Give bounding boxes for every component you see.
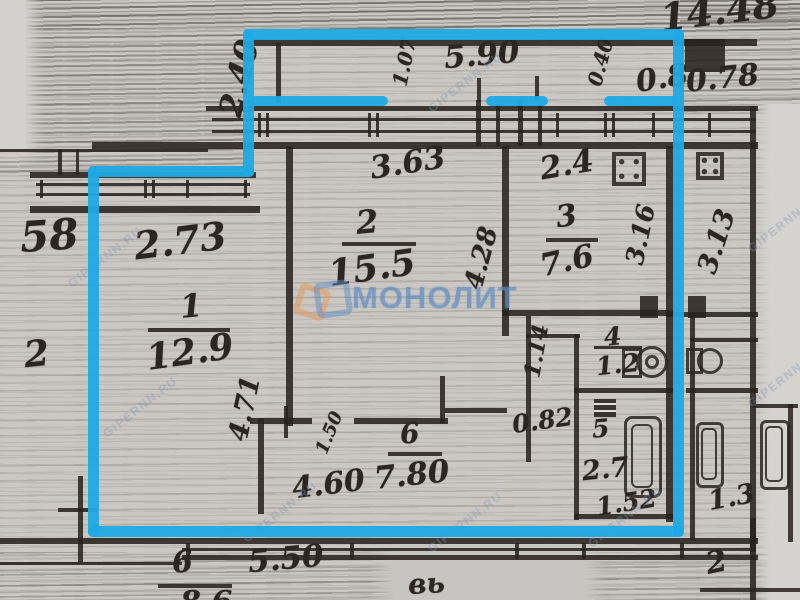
neighbor-room-number: 2 [22,335,51,373]
wall-segment [690,338,758,342]
highlight-jog-h [88,166,254,177]
wall-segment [0,538,758,544]
room1-number: 1 [179,289,204,323]
page-light-edge [0,0,26,150]
dim-rotated-neighbor: 3.13 [694,206,740,277]
wall-segment [556,113,559,137]
wall-segment [376,113,379,137]
dim-rotated: 1.14 [521,323,552,380]
wall-segment [276,43,281,103]
wall-segment [604,113,607,137]
wall-segment [574,334,579,520]
wall-segment [652,113,655,137]
wall-segment [574,388,674,393]
wall-segment [0,149,208,152]
highlight-left [88,166,99,537]
wall-segment [440,376,445,423]
floor-plan-scan: 14.48 5.90 0.8 0.78 1.07 0.40 2.40 58 2.… [0,0,800,600]
wall-segment [350,543,354,559]
dim-closet: 0.82 [511,404,575,437]
wall-segment [518,100,523,146]
wall-segment [36,183,250,186]
highlight-balcony-seg [604,96,678,106]
dim-neighbor-balcony: 0.78 [685,60,761,97]
wall-segment [250,418,312,424]
wall-segment [496,104,500,146]
wall-segment [266,113,269,137]
room6-area: 7.80 [373,456,451,495]
vent-shaft-icon [696,152,724,180]
plan-sheet-number: 58 [19,213,80,259]
wall-segment [286,146,293,426]
room4-area: 1.2 [595,350,641,379]
room2-number: 2 [355,205,380,239]
bathtub-icon [631,424,653,488]
bathtub-icon [765,426,783,482]
bathtub-icon [701,428,717,480]
wall-segment [686,388,758,393]
room1-area: 12.9 [144,328,236,376]
wall-segment [76,149,79,175]
wall-segment [690,312,695,540]
diagonal-watermark: GIPERNN.RU [100,374,180,441]
room3-area: 7.6 [537,241,596,283]
room6-number: 6 [399,419,420,448]
highlight-balcony-seg [250,96,388,106]
dim-neighbor: 1.3 [706,480,757,515]
highlight-bottom [88,526,684,537]
highlight-top [243,29,684,40]
wall-segment [700,588,800,592]
wall-segment [284,406,288,438]
dim-rotated: 1.50 [313,409,346,456]
wall-segment [582,543,586,559]
wall-segment [258,113,261,137]
wall-segment [666,146,673,522]
wall-segment [152,180,155,198]
center-watermark: МОНОЛИТ [352,280,518,316]
wall-segment [36,193,250,196]
highlight-balcony-seg [486,96,548,106]
wall-segment [144,180,147,198]
toilet-icon [697,348,723,374]
room5-number: 5 [591,415,611,441]
room3-number: 3 [554,201,579,234]
bottom-room-number: 6 [171,547,194,578]
page-margin [754,104,800,600]
dim-rotated: 3.16 [622,202,659,267]
wall-segment [640,296,658,318]
wall-segment [0,562,182,565]
diagonal-watermark: GIPERNN.RU [425,489,505,556]
bottom-neighbor-number: 2 [703,546,730,580]
wall-segment [58,149,62,175]
monolit-logo-icon [313,279,354,320]
wall-segment [515,543,519,559]
toilet-icon [645,355,659,369]
room4-number: 4 [603,323,623,349]
wall-segment [78,476,83,562]
dim-room1-width: 2.73 [132,217,229,266]
wall-segment [244,180,247,198]
wall-segment [445,408,507,413]
wall-segment [477,78,481,102]
wall-segment [476,100,481,146]
wall-segment [708,113,711,137]
wall-segment [258,418,264,514]
dim-room3-width: 2.4 [538,146,597,186]
room5-area: 2.7 [581,454,631,486]
dim-room2-width: 3.63 [368,142,447,184]
bottom-script: вь [407,569,445,599]
wall-segment [368,113,371,137]
wall-segment [40,180,43,198]
bottom-dimension: 5.50 [247,541,325,578]
wall-segment [186,180,189,198]
wall-segment [612,113,615,137]
wall-segment [538,104,542,146]
wall-segment [680,543,684,559]
vent-shaft-icon [612,152,646,186]
bottom-partial-number: 8.6 [180,588,232,600]
